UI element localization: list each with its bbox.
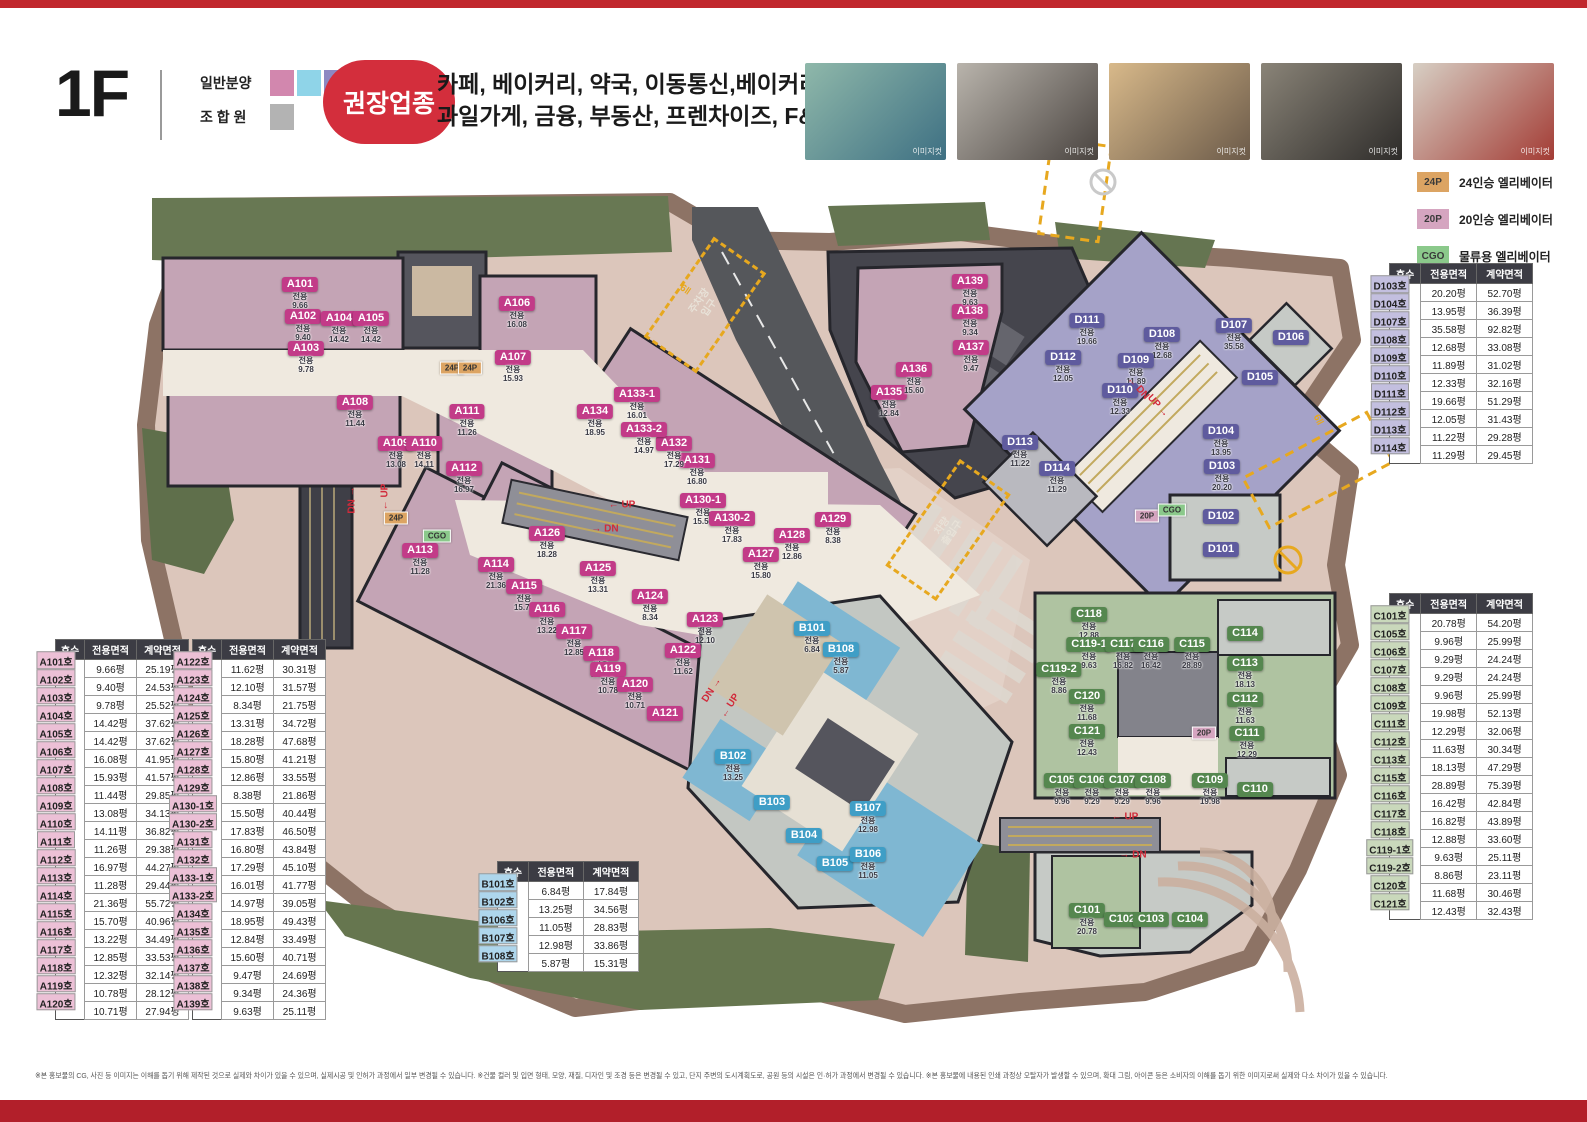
area-cell: 17.83평: [222, 822, 274, 840]
area-cell: 23.11평: [1477, 866, 1533, 884]
area-cell: 11.22평: [1421, 428, 1477, 446]
unit-cell: A139호: [173, 993, 212, 1011]
unit-cell: A111호: [37, 831, 75, 849]
unit-cell: A114호: [37, 885, 76, 903]
table-header: 계약면적: [1477, 264, 1533, 284]
area-cell: 29.28평: [1477, 428, 1533, 446]
area-cell: 15.31평: [583, 954, 638, 972]
area-cell: 8.38평: [222, 786, 274, 804]
unit-cell: A122호: [173, 651, 212, 669]
area-cell: 28.89평: [1421, 776, 1477, 794]
area-cell: 12.86평: [222, 768, 274, 786]
unit-cell: A130-1호: [169, 795, 217, 813]
area-cell: 6.84평: [528, 882, 583, 900]
area-cell: 13.22평: [85, 930, 137, 948]
area-cell: 40.71평: [274, 948, 326, 966]
floor-title: 1F: [55, 55, 128, 131]
table-row: C101호20.78평54.20평: [1390, 614, 1533, 632]
area-cell: 33.55평: [274, 768, 326, 786]
area-cell: 52.13평: [1477, 704, 1533, 722]
photo-caption: 이미지컷: [1217, 146, 1246, 157]
area-cell: 9.96평: [1421, 686, 1477, 704]
unit-cell: A136호: [173, 939, 212, 957]
area-cell: 92.82평: [1477, 320, 1533, 338]
area-cell: 31.43평: [1477, 410, 1533, 428]
area-cell: 41.77평: [274, 876, 326, 894]
area-cell: 19.66평: [1421, 392, 1477, 410]
unit-cell: A133-1호: [169, 867, 217, 885]
unit-cell: D113호: [1371, 419, 1410, 437]
area-cell: 11.28평: [85, 876, 137, 894]
unit-cell: A137호: [173, 957, 212, 975]
table-row: D111호19.66평51.29평: [1390, 392, 1533, 410]
unit-cell: B101호: [478, 873, 517, 891]
area-cell: 15.60평: [222, 948, 274, 966]
area-cell: 49.43평: [274, 912, 326, 930]
area-cell: 11.62평: [222, 660, 274, 678]
area-cell: 42.84평: [1477, 794, 1533, 812]
legend-swatches: [270, 104, 294, 130]
mart-photo: 이미지컷: [1413, 63, 1554, 160]
area-cell: 21.75평: [274, 696, 326, 714]
phone-store-photo: 이미지컷: [1109, 63, 1250, 160]
area-cell: 24.24평: [1477, 650, 1533, 668]
table-row: C113호18.13평47.29평: [1390, 758, 1533, 776]
area-cell: 18.13평: [1421, 758, 1477, 776]
area-cell: 8.34평: [222, 696, 274, 714]
elevator-chip-20P: 20P: [1417, 209, 1449, 229]
area-cell: 47.68평: [274, 732, 326, 750]
unit-cell: A101호: [36, 651, 75, 669]
legend-swatch: [297, 70, 321, 96]
unit-cell: C119-1호: [1366, 839, 1413, 857]
unit-cell: A112호: [37, 849, 76, 867]
area-cell: 24.24평: [1477, 668, 1533, 686]
area-cell: 8.86평: [1421, 866, 1477, 884]
area-cell: 24.36평: [274, 984, 326, 1002]
unit-cell: A133-2호: [169, 885, 217, 903]
area-cell: 14.42평: [85, 732, 137, 750]
area-cell: 16.08평: [85, 750, 137, 768]
table-header: 계약면적: [1477, 594, 1533, 614]
unit-cell: A132호: [173, 849, 212, 867]
photo-caption: 이미지컷: [913, 146, 942, 157]
table-row: D113호11.22평29.28평: [1390, 428, 1533, 446]
area-cell: 47.29평: [1477, 758, 1533, 776]
unit-cell: C119-2호: [1366, 857, 1413, 875]
area-cell: 11.44평: [85, 786, 137, 804]
area-cell: 9.63평: [222, 1002, 274, 1020]
area-cell: 10.78평: [85, 984, 137, 1002]
area-cell: 41.21평: [274, 750, 326, 768]
area-cell: 34.72평: [274, 714, 326, 732]
elevator-legend-row: 20P20인승 엘리베이터: [1417, 209, 1553, 229]
realestate-photo: 이미지컷: [957, 63, 1098, 160]
area-cell: 21.36평: [85, 894, 137, 912]
table-row: D104호13.95평36.39평: [1390, 302, 1533, 320]
unit-cell: C120호: [1370, 875, 1409, 893]
area-cell: 9.63평: [1421, 848, 1477, 866]
area-cell: 12.29평: [1421, 722, 1477, 740]
area-cell: 9.78평: [85, 696, 137, 714]
area-cell: 15.70평: [85, 912, 137, 930]
area-cell: 31.02평: [1477, 356, 1533, 374]
unit-cell: A130-2호: [169, 813, 217, 831]
area-cell: 20.78평: [1421, 614, 1477, 632]
unit-cell: D103호: [1370, 275, 1409, 293]
area-cell: 29.45평: [1477, 446, 1533, 464]
area-table-B: 호수전용면적계약면적B101호6.84평17.84평B102호13.25평34.…: [497, 861, 639, 972]
area-cell: 9.29평: [1421, 668, 1477, 686]
unit-cell: C106호: [1370, 641, 1409, 659]
area-cell: 32.16평: [1477, 374, 1533, 392]
table-row: C119-2호8.86평23.11평: [1390, 866, 1533, 884]
legend-swatch: [270, 104, 294, 130]
area-table-A2: 호수전용면적계약면적A122호11.62평30.31평A123호12.10평31…: [192, 639, 326, 1020]
unit-cell: D112호: [1371, 401, 1410, 419]
unit-cell: D114호: [1371, 437, 1410, 455]
area-cell: 32.06평: [1477, 722, 1533, 740]
table-header: 전용면적: [222, 640, 274, 660]
area-cell: 12.84평: [222, 930, 274, 948]
unit-cell: C107호: [1370, 659, 1409, 677]
unit-cell: A123호: [173, 669, 212, 687]
area-cell: 28.83평: [583, 918, 638, 936]
unit-cell: C108호: [1370, 677, 1409, 695]
unit-cell: B107호: [478, 927, 517, 945]
unit-cell: A129호: [173, 777, 212, 795]
unit-cell: C113호: [1371, 749, 1410, 767]
unit-cell: A102호: [36, 669, 75, 687]
area-cell: 20.20평: [1421, 284, 1477, 302]
unit-cell: D107호: [1370, 311, 1409, 329]
area-cell: 11.26평: [85, 840, 137, 858]
table-row: C106호9.29평24.24평: [1390, 650, 1533, 668]
area-cell: 36.39평: [1477, 302, 1533, 320]
unit-cell: B106호: [478, 909, 517, 927]
elevator-label: 24인승 엘리베이터: [1459, 174, 1553, 191]
bottom-red-bar: [0, 1100, 1587, 1122]
unit-cell: A115호: [37, 903, 76, 921]
table-row: C108호9.96평25.99평: [1390, 686, 1533, 704]
photo-caption: 이미지컷: [1369, 146, 1398, 157]
unit-cell: A124호: [173, 687, 212, 705]
table-row: D107호35.58평92.82평: [1390, 320, 1533, 338]
area-cell: 52.70평: [1477, 284, 1533, 302]
elevator-label: 20인승 엘리베이터: [1459, 211, 1553, 228]
area-cell: 11.29평: [1421, 446, 1477, 464]
unit-cell: A106호: [36, 741, 75, 759]
pharmacy-photo: 이미지컷: [805, 63, 946, 160]
unit-cell: C111호: [1371, 713, 1409, 731]
table-row: C105호9.96평25.99평: [1390, 632, 1533, 650]
area-cell: 54.20평: [1477, 614, 1533, 632]
unit-cell: B102호: [478, 891, 517, 909]
unit-cell: A128호: [173, 759, 212, 777]
unit-cell: A127호: [173, 741, 212, 759]
area-cell: 51.29평: [1477, 392, 1533, 410]
unit-cell: A110호: [37, 813, 76, 831]
unit-cell: A135호: [173, 921, 212, 939]
unit-cell: C121호: [1370, 893, 1409, 911]
legend-label: 일반분양: [200, 73, 262, 93]
unit-cell: A125호: [173, 705, 212, 723]
area-cell: 15.80평: [222, 750, 274, 768]
area-cell: 32.43평: [1477, 902, 1533, 920]
unit-cell: A109호: [36, 795, 75, 813]
area-cell: 25.11평: [274, 1002, 326, 1020]
area-cell: 40.44평: [274, 804, 326, 822]
area-cell: 12.85평: [85, 948, 137, 966]
area-cell: 15.50평: [222, 804, 274, 822]
table-row: C112호11.63평30.34평: [1390, 740, 1533, 758]
table-row: A139호9.63평25.11평: [193, 1002, 326, 1020]
legend-union-member: 조 합 원: [200, 104, 294, 130]
area-cell: 18.28평: [222, 732, 274, 750]
table-row: A115호15.70평40.96평: [56, 912, 189, 930]
unit-cell: A116호: [37, 921, 76, 939]
area-cell: 75.39평: [1477, 776, 1533, 794]
table-row: A111호11.26평29.38평: [56, 840, 189, 858]
unit-cell: C101호: [1370, 605, 1409, 623]
area-cell: 12.43평: [1421, 902, 1477, 920]
area-cell: 33.60평: [1477, 830, 1533, 848]
cafe-photo: 이미지컷: [1261, 63, 1402, 160]
table-row: B106호11.05평28.83평: [498, 918, 639, 936]
table-header: 전용면적: [1421, 264, 1477, 284]
area-cell: 12.68평: [1421, 338, 1477, 356]
area-cell: 17.29평: [222, 858, 274, 876]
unit-cell: A105호: [36, 723, 75, 741]
photo-caption: 이미지컷: [1065, 146, 1094, 157]
area-cell: 21.86평: [274, 786, 326, 804]
table-header: 전용면적: [85, 640, 137, 660]
top-red-bar: [0, 0, 1587, 8]
table-row: D112호12.05평31.43평: [1390, 410, 1533, 428]
table-header: 전용면적: [528, 862, 583, 882]
table-row: C116호16.42평42.84평: [1390, 794, 1533, 812]
area-cell: 33.08평: [1477, 338, 1533, 356]
area-cell: 16.01평: [222, 876, 274, 894]
area-cell: 16.80평: [222, 840, 274, 858]
unit-cell: D111호: [1371, 383, 1409, 401]
area-cell: 14.97평: [222, 894, 274, 912]
elevator-chip-24P: 24P: [1417, 172, 1449, 192]
table-row: A117호12.85평33.53평: [56, 948, 189, 966]
table-row: B102호13.25평34.56평: [498, 900, 639, 918]
unit-cell: A119호: [37, 975, 76, 993]
photo-caption: 이미지컷: [1521, 146, 1550, 157]
area-cell: 12.05평: [1421, 410, 1477, 428]
area-cell: 31.57평: [274, 678, 326, 696]
area-cell: 13.31평: [222, 714, 274, 732]
area-cell: 46.50평: [274, 822, 326, 840]
disclaimer-text: ※본 홍보물의 CG, 사진 등 이미지는 이해를 돕기 위해 제작된 것으로 …: [35, 1070, 1443, 1081]
table-row: D103호20.20평52.70평: [1390, 284, 1533, 302]
unit-cell: A108호: [36, 777, 75, 795]
table-row: B101호6.84평17.84평: [498, 882, 639, 900]
table-row: B107호12.98평33.86평: [498, 936, 639, 954]
unit-cell: C116호: [1371, 785, 1410, 803]
area-cell: 16.82평: [1421, 812, 1477, 830]
area-cell: 11.05평: [528, 918, 583, 936]
table-row: B108호5.87평15.31평: [498, 954, 639, 972]
unit-cell: A120호: [36, 993, 75, 1011]
area-cell: 12.10평: [222, 678, 274, 696]
unit-cell: A117호: [37, 939, 76, 957]
area-cell: 16.97평: [85, 858, 137, 876]
area-cell: 35.58평: [1421, 320, 1477, 338]
area-cell: 9.47평: [222, 966, 274, 984]
area-cell: 25.99평: [1477, 632, 1533, 650]
area-cell: 15.93평: [85, 768, 137, 786]
area-cell: 25.11평: [1477, 848, 1533, 866]
area-cell: 12.33평: [1421, 374, 1477, 392]
area-cell: 12.32평: [85, 966, 137, 984]
unit-cell: A118호: [37, 957, 76, 975]
unit-cell: A126호: [173, 723, 212, 741]
unit-cell: C118호: [1371, 821, 1410, 839]
legend-swatch: [270, 70, 294, 96]
unit-cell: D104호: [1370, 293, 1409, 311]
area-cell: 25.99평: [1477, 686, 1533, 704]
recommended-business-badge: 권장업종: [323, 60, 455, 144]
header-divider: [160, 70, 162, 140]
area-cell: 17.84평: [583, 882, 638, 900]
area-cell: 33.49평: [274, 930, 326, 948]
unit-cell: C115호: [1371, 767, 1410, 785]
table-row: C115호28.89평75.39평: [1390, 776, 1533, 794]
area-cell: 12.98평: [528, 936, 583, 954]
area-cell: 9.40평: [85, 678, 137, 696]
table-row: C121호12.43평32.43평: [1390, 902, 1533, 920]
elevator-legend-row: 24P24인승 엘리베이터: [1417, 172, 1553, 192]
area-cell: 45.10평: [274, 858, 326, 876]
area-cell: 39.05평: [274, 894, 326, 912]
area-cell: 13.95평: [1421, 302, 1477, 320]
area-cell: 9.34평: [222, 984, 274, 1002]
area-table-C: 호수전용면적계약면적C101호20.78평54.20평C105호9.96평25.…: [1389, 593, 1533, 920]
table-header: 계약면적: [583, 862, 638, 882]
area-cell: 11.63평: [1421, 740, 1477, 758]
area-cell: 9.96평: [1421, 632, 1477, 650]
unit-cell: A113호: [37, 867, 76, 885]
table-row: C109호19.98평52.13평: [1390, 704, 1533, 722]
table-row: D110호12.33평32.16평: [1390, 374, 1533, 392]
area-cell: 13.08평: [85, 804, 137, 822]
area-cell: 43.84평: [274, 840, 326, 858]
unit-cell: B108호: [478, 945, 517, 963]
unit-cell: D110호: [1371, 365, 1410, 383]
unit-cell: A138호: [173, 975, 212, 993]
table-row: D109호11.89평31.02평: [1390, 356, 1533, 374]
table-row: D114호11.29평29.45평: [1390, 446, 1533, 464]
area-cell: 5.87평: [528, 954, 583, 972]
area-cell: 10.71평: [85, 1002, 137, 1020]
unit-cell: A104호: [36, 705, 75, 723]
area-cell: 30.46평: [1477, 884, 1533, 902]
area-cell: 14.11평: [85, 822, 137, 840]
table-row: C120호11.68평30.46평: [1390, 884, 1533, 902]
table-header: 전용면적: [1421, 594, 1477, 614]
area-cell: 43.89평: [1477, 812, 1533, 830]
area-cell: 33.86평: [583, 936, 638, 954]
unit-cell: D108호: [1370, 329, 1409, 347]
area-cell: 18.95평: [222, 912, 274, 930]
area-cell: 30.34평: [1477, 740, 1533, 758]
area-cell: 14.42평: [85, 714, 137, 732]
area-table-D: 호수전용면적계약면적D103호20.20평52.70평D104호13.95평36…: [1389, 263, 1533, 464]
unit-cell: C109호: [1370, 695, 1409, 713]
unit-cell: C112호: [1371, 731, 1410, 749]
area-cell: 16.42평: [1421, 794, 1477, 812]
legend-label: 조 합 원: [200, 107, 262, 127]
area-cell: 34.56평: [583, 900, 638, 918]
table-row: C107호9.29평24.24평: [1390, 668, 1533, 686]
area-cell: 19.98평: [1421, 704, 1477, 722]
unit-cell: A107호: [36, 759, 75, 777]
unit-cell: D109호: [1370, 347, 1409, 365]
area-cell: 12.88평: [1421, 830, 1477, 848]
unit-cell: A131호: [173, 831, 212, 849]
area-cell: 11.68평: [1421, 884, 1477, 902]
table-row: C111호12.29평32.06평: [1390, 722, 1533, 740]
unit-cell: A103호: [36, 687, 75, 705]
unit-cell: A134호: [173, 903, 212, 921]
page: { "theme":{"top_bar":"#c1272d","bottom_b…: [0, 0, 1587, 1122]
table-row: C117호16.82평43.89평: [1390, 812, 1533, 830]
elevator-label: 물류용 엘리베이터: [1459, 248, 1551, 265]
area-cell: 9.29평: [1421, 650, 1477, 668]
table-row: A120호10.71평27.94평: [56, 1002, 189, 1020]
area-cell: 13.25평: [528, 900, 583, 918]
area-cell: 30.31평: [274, 660, 326, 678]
table-header: 계약면적: [274, 640, 326, 660]
table-row: A118호12.32평32.14평: [56, 966, 189, 984]
area-cell: 24.69평: [274, 966, 326, 984]
area-cell: 11.89평: [1421, 356, 1477, 374]
table-row: D108호12.68평33.08평: [1390, 338, 1533, 356]
unit-cell: C117호: [1371, 803, 1410, 821]
unit-cell: C105호: [1370, 623, 1409, 641]
area-cell: 9.66평: [85, 660, 137, 678]
table-row: A116호13.22평34.49평: [56, 930, 189, 948]
